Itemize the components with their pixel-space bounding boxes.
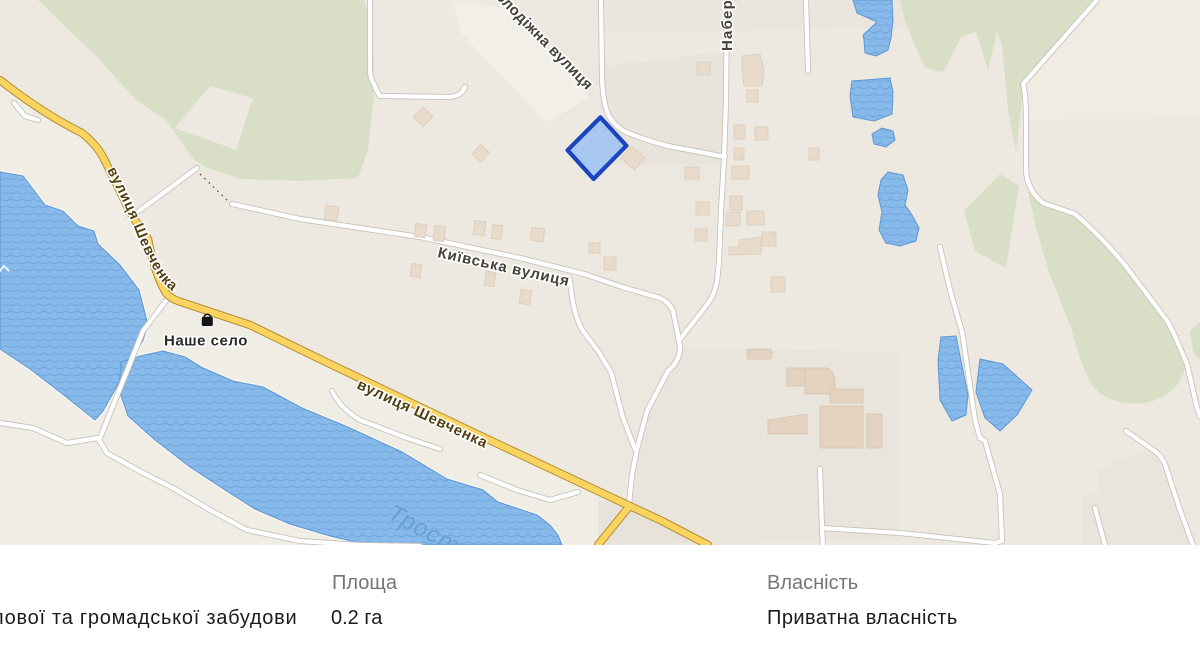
- svg-text:Наше село: Наше село: [164, 333, 248, 350]
- svg-text:Набережна: Набережна: [719, 0, 736, 51]
